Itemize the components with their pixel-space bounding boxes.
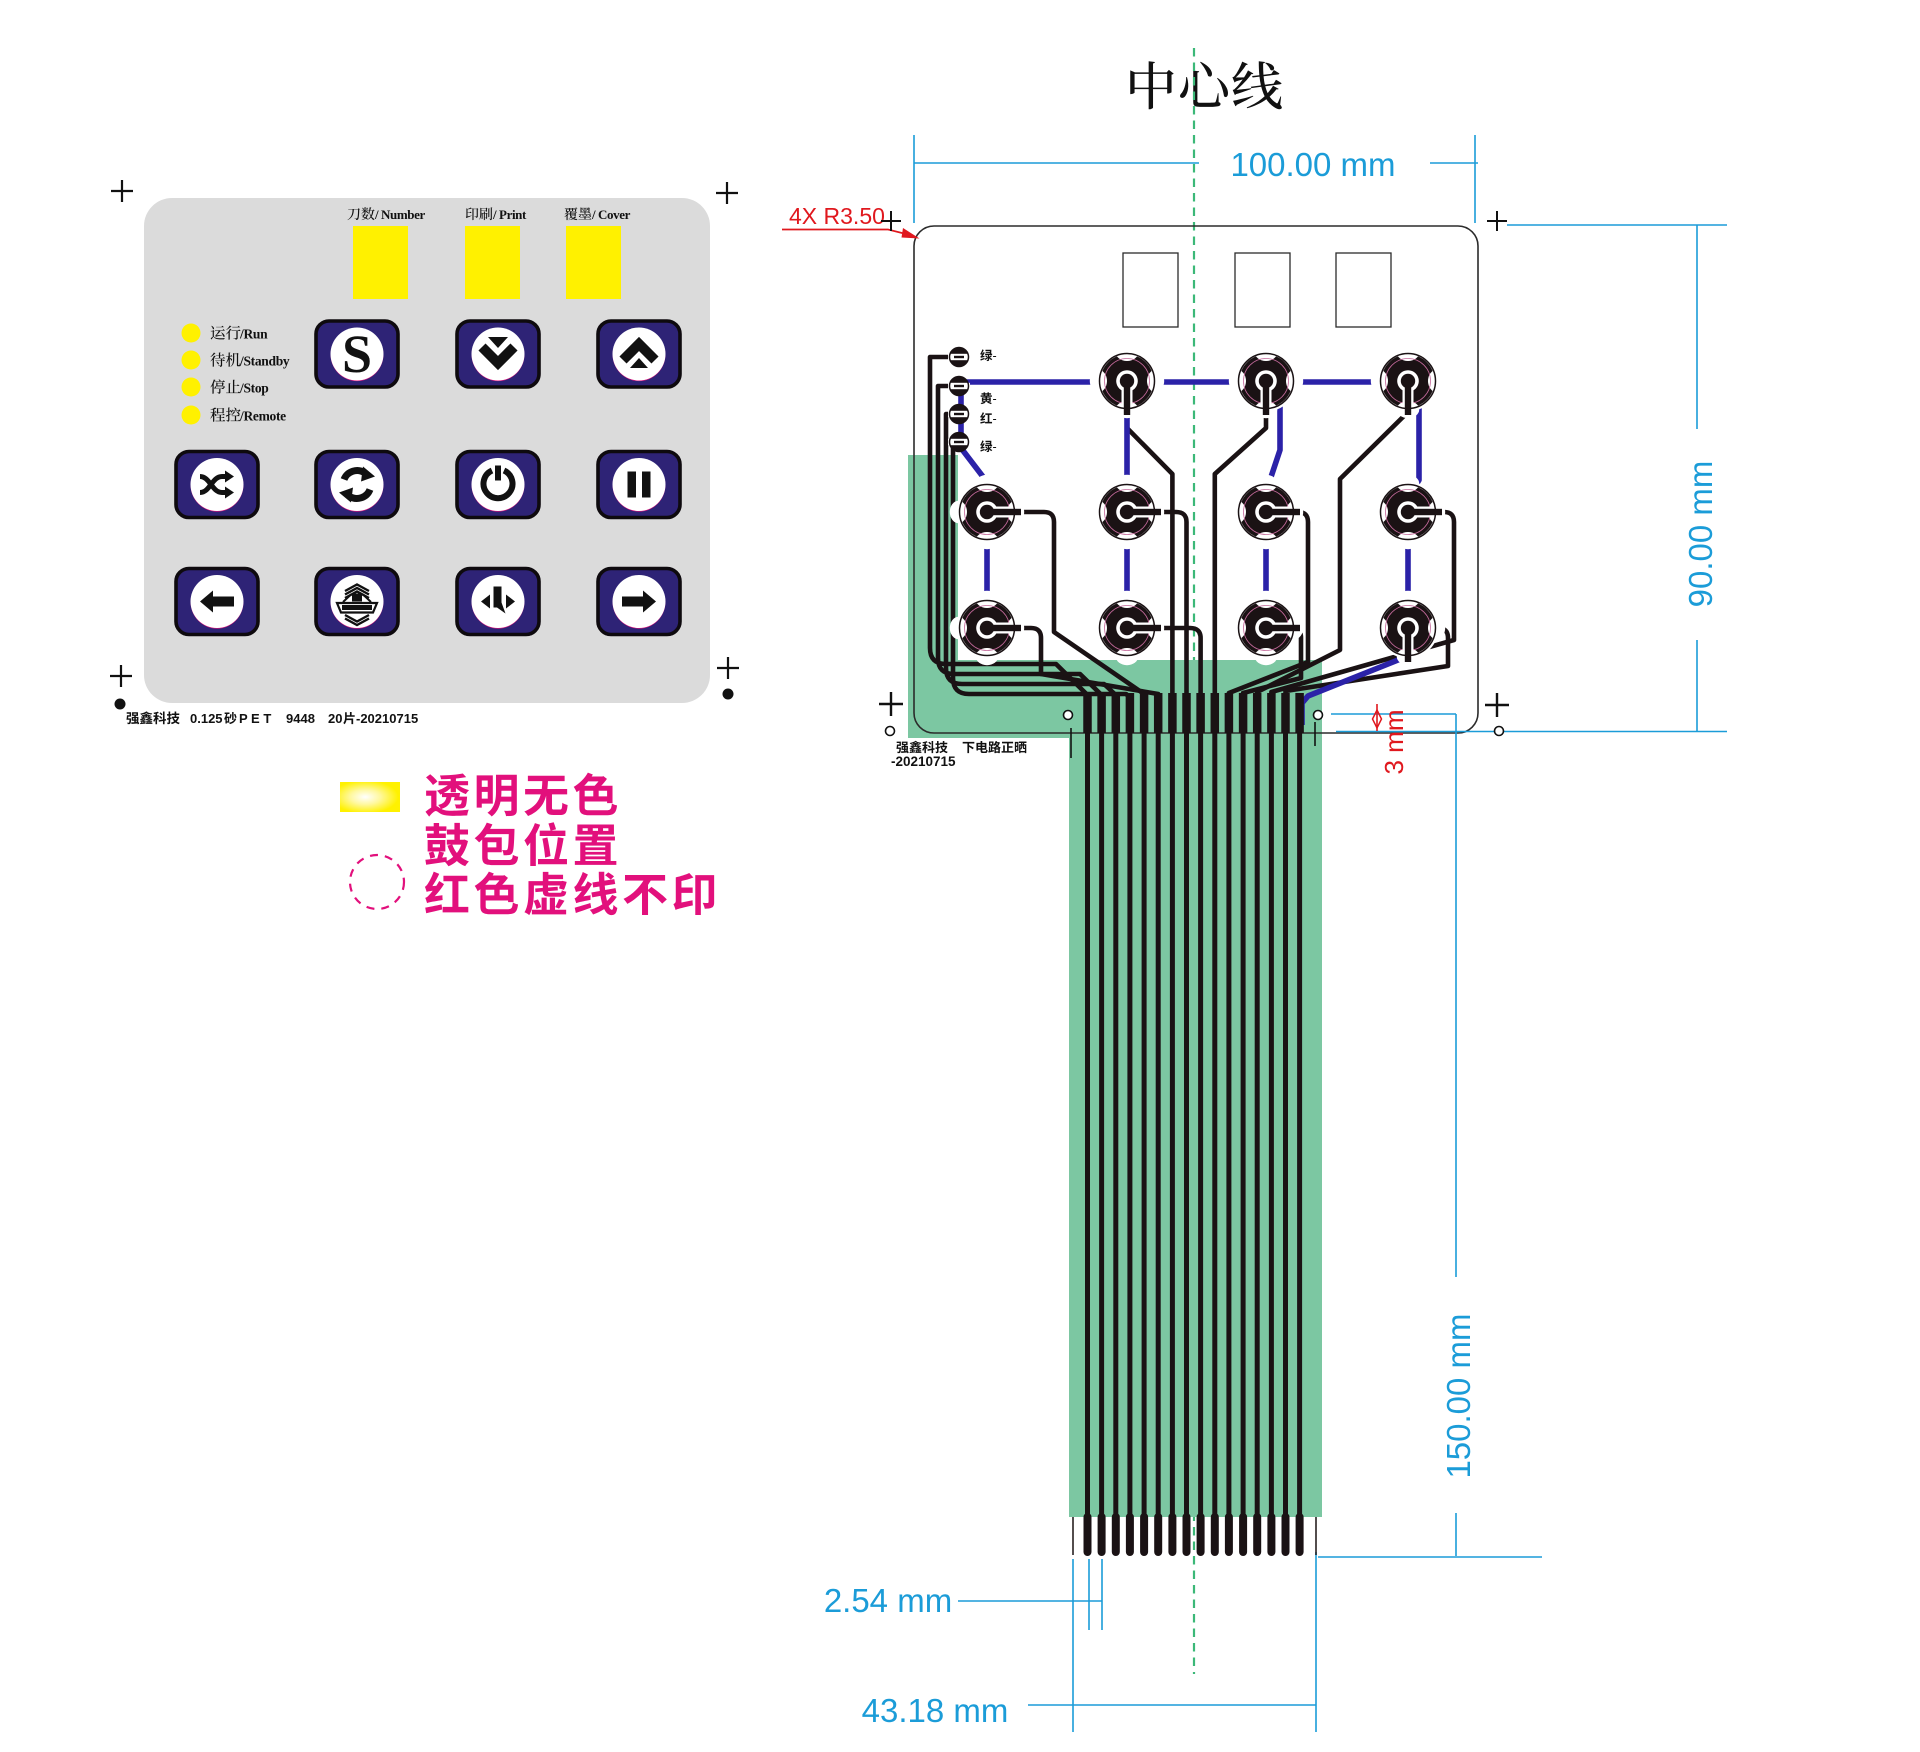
svg-text:100.00 mm: 100.00 mm	[1230, 146, 1395, 183]
svg-text:43.18 mm: 43.18 mm	[862, 1692, 1009, 1729]
svg-text:-: -	[993, 349, 997, 363]
svg-text:-20210715: -20210715	[891, 754, 956, 769]
svg-text:2.54 mm: 2.54 mm	[824, 1582, 952, 1619]
svg-text:/Stop: /Stop	[239, 381, 269, 396]
svg-text:/Run: /Run	[239, 327, 268, 342]
svg-text:-20210715: -20210715	[356, 711, 418, 726]
svg-text:P E T: P E T	[239, 711, 271, 726]
svg-text:-: -	[993, 412, 997, 426]
svg-text:/ Cover: / Cover	[591, 207, 631, 222]
svg-text:90.00 mm: 90.00 mm	[1682, 461, 1719, 608]
svg-text:0.125: 0.125	[190, 711, 223, 726]
svg-text:/ Number: / Number	[374, 207, 426, 222]
svg-text:-: -	[993, 392, 997, 406]
svg-text:4X R3.50: 4X R3.50	[789, 203, 885, 229]
svg-text:/Remote: /Remote	[239, 409, 286, 424]
svg-text:3 mm: 3 mm	[1379, 710, 1409, 775]
svg-text:/ Print: / Print	[492, 207, 527, 222]
svg-text:S: S	[342, 324, 372, 384]
svg-text:/Standby: /Standby	[239, 354, 290, 369]
svg-text:150.00 mm: 150.00 mm	[1440, 1313, 1477, 1478]
svg-text:20: 20	[328, 711, 342, 726]
svg-text:-: -	[993, 440, 997, 454]
svg-text:9448: 9448	[286, 711, 315, 726]
